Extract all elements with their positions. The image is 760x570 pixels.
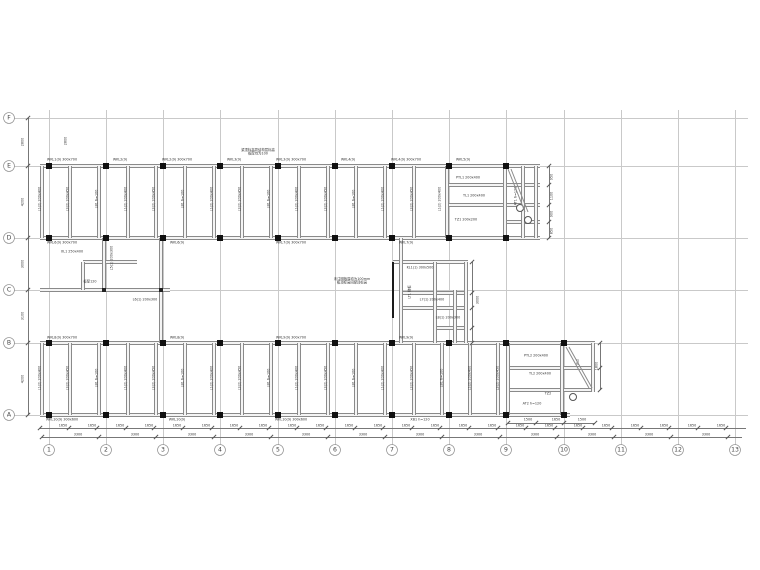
- column-marker: [160, 412, 166, 418]
- dimension-number: 1650: [374, 424, 383, 428]
- beam-label: TZ1 200x200: [455, 218, 477, 222]
- beam-label: WKL10(9) 300x600: [46, 418, 78, 422]
- dimension-number: 1650: [717, 424, 726, 428]
- beam-label: L8(1) 200x300: [436, 316, 461, 320]
- floor-plan-canvas: 12345678910111213FEDCBA16501650165016501…: [0, 0, 760, 570]
- beam-label: WKL7(9) 300x700: [276, 241, 306, 245]
- beam-horizontal: [508, 388, 595, 392]
- dimension-number: 3300: [531, 433, 540, 437]
- column-marker: [217, 340, 223, 346]
- dimension-number: 3300: [416, 433, 425, 437]
- dimension-tick: [598, 388, 603, 393]
- grid-line-vertical: [735, 110, 736, 445]
- column-marker: [103, 163, 109, 169]
- dimension-number: 1650: [574, 424, 583, 428]
- beam-label: 1500: [524, 418, 533, 422]
- column-marker: [389, 412, 395, 418]
- grid-bubble-column: 3: [157, 444, 169, 456]
- dimension-number: 1650: [145, 424, 154, 428]
- column-marker: [503, 163, 509, 169]
- dimension-number: 1650: [316, 424, 325, 428]
- beam-label: WKL4(9): [341, 158, 355, 162]
- beam-bold-line: [392, 262, 394, 318]
- beam-label: WKL2(9): [113, 158, 127, 162]
- beam-label: WKL2(9) 300x700: [162, 158, 192, 162]
- beam-label: WKL5(9): [456, 158, 470, 162]
- column-marker: [103, 340, 109, 346]
- beam-label: WKL6(9) 300x700: [47, 241, 77, 245]
- dimension-number: 1650: [259, 424, 268, 428]
- beam-horizontal: [40, 341, 595, 345]
- dimension-number: 1650: [516, 424, 525, 428]
- dimension-number: 1650: [345, 424, 354, 428]
- dimension-number: 1650: [545, 424, 554, 428]
- column-marker: [332, 235, 338, 241]
- beam-label: 900: [550, 211, 554, 217]
- beam-label: TZ2: [545, 392, 551, 396]
- beam-label: L2(2) 200x450: [324, 187, 328, 212]
- column-marker: [160, 163, 166, 169]
- grid-bubble-column: 4: [214, 444, 226, 456]
- beam-label: XL2: [576, 359, 580, 365]
- grid-bubble-column: 2: [100, 444, 112, 456]
- grid-bubble-row: E: [3, 160, 15, 172]
- beam-label: L2(2) 200x450: [324, 366, 328, 391]
- dimension-number: 3300: [188, 433, 197, 437]
- beam-label: L1(2) 200x400: [438, 187, 442, 212]
- dimension-number: 1650: [431, 424, 440, 428]
- dimension-number: 1650: [402, 424, 411, 428]
- detail-circle: [569, 393, 577, 401]
- dimension-number: 1650: [88, 424, 97, 428]
- grid-line-horizontal: [14, 118, 748, 119]
- dimension-number: 3300: [245, 433, 254, 437]
- dimension-number: 1650: [116, 424, 125, 428]
- beam-label: L1(2) 200x400: [124, 366, 128, 391]
- stair-diagonal-lines: [0, 0, 760, 570]
- dimension-number: 3300: [302, 433, 311, 437]
- joint-marker: [159, 288, 163, 292]
- dimension-number: 1650: [488, 424, 497, 428]
- beam-vertical: [506, 343, 510, 415]
- dimension-number: 1650: [230, 424, 239, 428]
- beam-label: L2(2) 200x450: [66, 366, 70, 391]
- grid-bubble-column: 5: [272, 444, 284, 456]
- beam-label: L2(2) 200x450: [410, 187, 414, 212]
- column-marker: [160, 340, 166, 346]
- column-marker: [46, 163, 52, 169]
- column-marker: [503, 412, 509, 418]
- beam-horizontal: [393, 260, 468, 264]
- column-marker: [217, 163, 223, 169]
- beam-label: WKL7(9): [399, 241, 413, 245]
- beam-label: 850: [550, 228, 554, 234]
- beam-label: LB1 h=100: [95, 190, 99, 209]
- grid-line-vertical: [678, 110, 679, 445]
- beam-label: L1(2) 200x400: [381, 187, 385, 212]
- dimension-number: 3300: [702, 433, 711, 437]
- grid-bubble-column: 8: [443, 444, 455, 456]
- grid-bubble-column: 9: [500, 444, 512, 456]
- beam-label: LB1 h=100: [440, 369, 444, 388]
- beam-label: L1(2) 200x400: [210, 366, 214, 391]
- column-marker: [446, 163, 452, 169]
- column-marker: [103, 235, 109, 241]
- beam-label: L2(2) 200x450: [238, 187, 242, 212]
- grid-bubble-column: 11: [615, 444, 627, 456]
- grid-bubble-column: 7: [386, 444, 398, 456]
- column-marker: [389, 235, 395, 241]
- dimension-number: 1650: [173, 424, 182, 428]
- dimension-number: 3300: [359, 433, 368, 437]
- column-marker: [332, 340, 338, 346]
- dimension-number: 1650: [631, 424, 640, 428]
- beam-label: LB1 h=100: [267, 369, 271, 388]
- column-marker: [446, 340, 452, 346]
- beam-label: WKL4(9) 300x700: [391, 158, 421, 162]
- grid-bubble-column: 12: [672, 444, 684, 456]
- column-marker: [446, 235, 452, 241]
- grid-line-vertical: [220, 110, 221, 445]
- beam-label: 2800: [64, 137, 68, 146]
- beam-label: LT1 梯板: [408, 285, 412, 298]
- beam-label: LB1 h=100: [181, 190, 185, 209]
- beam-label: L1(2) 200x400: [381, 366, 385, 391]
- beam-label: 950: [550, 174, 554, 180]
- beam-horizontal: [40, 413, 570, 417]
- beam-label: WKL9(9) 300x700: [276, 336, 306, 340]
- beam-horizontal: [40, 236, 540, 240]
- beam-label: L1(2) 200x400: [210, 187, 214, 212]
- dimension-number: 1650: [660, 424, 669, 428]
- beam-label: L1(2) 200x400: [295, 366, 299, 391]
- grid-bubble-column: 1: [43, 444, 55, 456]
- beam-label: XL1 250x400: [61, 250, 83, 254]
- dimension-number: 3300: [131, 433, 140, 437]
- dimension-number: 4200: [21, 198, 25, 207]
- column-marker: [103, 412, 109, 418]
- dimension-line: [472, 262, 473, 343]
- beam-label: LB1 h=100: [95, 369, 99, 388]
- grid-bubble-row: F: [3, 112, 15, 124]
- beam-label: 板厚120: [83, 280, 96, 284]
- column-marker: [561, 340, 567, 346]
- beam-label: TL1 200x400: [463, 194, 485, 198]
- beam-label: AT2 h=120: [523, 402, 542, 406]
- beam-label: L1(2) 200x400: [295, 187, 299, 212]
- beam-label: WKL10(9): [169, 418, 185, 422]
- beam-vertical: [445, 166, 449, 238]
- beam-label: WKL3(9) 300x700: [276, 158, 306, 162]
- dimension-line: [42, 437, 742, 438]
- beam-horizontal: [40, 164, 540, 168]
- beam-label: WKL8(9): [170, 336, 184, 340]
- column-marker: [389, 340, 395, 346]
- dimension-number: 3000: [21, 260, 25, 269]
- beam-label: 1500: [578, 418, 587, 422]
- beam-vertical: [399, 238, 403, 343]
- column-marker: [503, 340, 509, 346]
- beam-label: TL2 200x400: [529, 372, 551, 376]
- column-marker: [332, 412, 338, 418]
- dimension-number: 3100: [21, 312, 25, 321]
- beam-label: L1(2) 200x400: [38, 366, 42, 391]
- beam-label: 未注明板厚均为100mm 板顶标高同梁顶标高: [334, 277, 370, 284]
- beam-label: PTL2 200x400: [524, 354, 548, 358]
- beam-label: KL1(1) 300x500: [407, 266, 434, 270]
- beam-label: L6(1) 200x300: [133, 298, 158, 302]
- beam-horizontal: [447, 203, 540, 207]
- column-marker: [160, 235, 166, 241]
- dimension-number: 4200: [21, 375, 25, 384]
- column-marker: [217, 235, 223, 241]
- beam-label: LB1 h=100: [181, 369, 185, 388]
- grid-bubble-column: 13: [729, 444, 741, 456]
- beam-label: PTL1 200x400: [456, 176, 480, 180]
- beam-vertical: [81, 262, 85, 290]
- dimension-number: 1650: [459, 424, 468, 428]
- grid-bubble-row: B: [3, 337, 15, 349]
- beam-label: 1100: [550, 192, 554, 201]
- joint-marker: [102, 288, 106, 292]
- beam-label: WKL9(9): [399, 336, 413, 340]
- beam-label: L2(2) 200x450: [410, 366, 414, 391]
- column-marker: [503, 235, 509, 241]
- dimension-number: 3300: [474, 433, 483, 437]
- beam-label: 3000: [476, 296, 480, 305]
- column-marker: [46, 340, 52, 346]
- beam-vertical: [560, 343, 564, 415]
- beam-label: L2(2) 200x450: [66, 187, 70, 212]
- grid-line-vertical: [621, 110, 622, 445]
- beam-label: L2(2) 200x450: [496, 366, 500, 391]
- column-marker: [332, 163, 338, 169]
- dimension-number: 1650: [59, 424, 68, 428]
- beam-label: WKL8(9) 300x700: [47, 336, 77, 340]
- beam-label: L7(1) 200x400: [420, 298, 445, 302]
- dimension-number: 3300: [74, 433, 83, 437]
- beam-horizontal: [447, 183, 540, 187]
- grid-bubble-column: 10: [558, 444, 570, 456]
- beam-label: LB1 h=100: [267, 190, 271, 209]
- beam-vertical: [534, 166, 538, 238]
- beam-vertical: [521, 166, 525, 238]
- beam-label: L2(2) 200x450: [152, 366, 156, 391]
- dimension-number: 1650: [602, 424, 611, 428]
- beam-label: XB1 h=120: [410, 418, 429, 422]
- column-marker: [389, 163, 395, 169]
- beam-label: LB1 h=100: [352, 190, 356, 209]
- grid-line-vertical: [564, 110, 565, 445]
- dimension-number: 3300: [645, 433, 654, 437]
- beam-label: L1(2) 200x400: [124, 187, 128, 212]
- dimension-number: 1650: [688, 424, 697, 428]
- dimension-tick: [593, 421, 598, 426]
- dimension-number: 2800: [21, 138, 25, 147]
- column-marker: [275, 163, 281, 169]
- dimension-number: 1650: [288, 424, 297, 428]
- beam-label: WKL3(9): [227, 158, 241, 162]
- dimension-number: 3300: [588, 433, 597, 437]
- beam-label: L1(2) 200x400: [468, 366, 472, 391]
- column-marker: [217, 412, 223, 418]
- column-marker: [446, 412, 452, 418]
- column-marker: [561, 412, 567, 418]
- grid-bubble-row: C: [3, 284, 15, 296]
- detail-circle: [524, 216, 532, 224]
- grid-bubble-column: 6: [329, 444, 341, 456]
- grid-bubble-row: D: [3, 232, 15, 244]
- beam-label: 1800: [595, 362, 599, 371]
- beam-label: L5(1) 200x300: [110, 246, 114, 271]
- beam-label: AT1 h=120: [514, 187, 518, 206]
- grid-line-vertical: [449, 110, 450, 445]
- beam-vertical: [102, 238, 106, 290]
- dimension-number: 1650: [202, 424, 211, 428]
- beam-vertical: [433, 262, 437, 343]
- beam-label: WKL6(9): [170, 241, 184, 245]
- beam-label: L1(2) 200x400: [38, 187, 42, 212]
- beam-label: 梁顶标高同结构层标高 板厚均为100: [241, 148, 275, 155]
- beam-label: WKL1(9) 300x700: [47, 158, 77, 162]
- beam-label: LB1 h=100: [352, 369, 356, 388]
- beam-label: L2(2) 200x450: [238, 366, 242, 391]
- column-marker: [275, 340, 281, 346]
- beam-label: 1650: [552, 418, 561, 422]
- beam-horizontal: [508, 366, 595, 370]
- grid-line-vertical: [106, 110, 107, 445]
- beam-vertical: [503, 166, 507, 238]
- beam-label: L2(2) 200x450: [152, 187, 156, 212]
- beam-label: WKL10(9) 300x600: [275, 418, 307, 422]
- grid-bubble-row: A: [3, 409, 15, 421]
- beam-vertical: [464, 262, 468, 343]
